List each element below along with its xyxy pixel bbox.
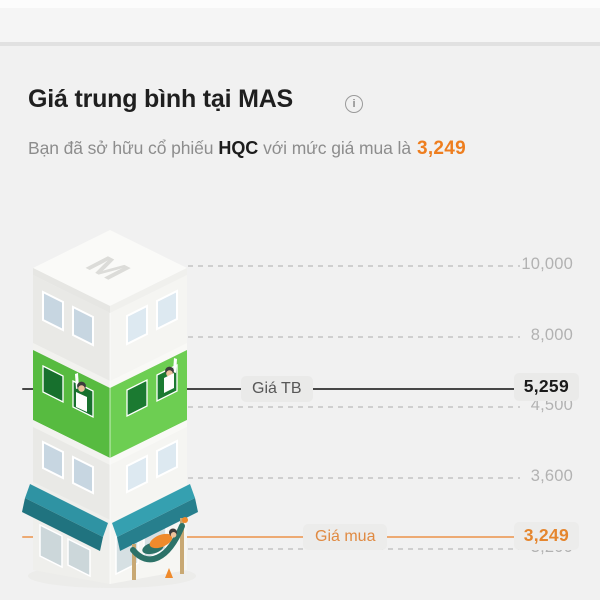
dashed-line xyxy=(188,265,520,267)
building-illustration: M xyxy=(20,226,200,590)
tick-label: 3,600 xyxy=(531,468,573,485)
info-icon[interactable]: i xyxy=(345,95,363,113)
lantern xyxy=(182,517,188,523)
average-price-value: 5,259 xyxy=(514,373,579,401)
subtitle-prefix: Bạn đã sở hữu cổ phiếu xyxy=(28,138,213,158)
purchase-price-value: 3,249 xyxy=(514,522,579,550)
mas-average-price-card: Giá trung bình tại MAS i Bạn đã sở hữu c… xyxy=(0,0,600,600)
dashed-line xyxy=(188,406,520,408)
purchase-price-inline: 3,249 xyxy=(417,138,466,159)
top-app-bar xyxy=(0,0,600,46)
tick-label: 10,000 xyxy=(521,256,573,273)
dashed-line xyxy=(188,477,520,479)
purchase-price-label: Giá mua xyxy=(303,524,387,550)
ticker-symbol: HQC xyxy=(218,138,258,158)
dashed-line xyxy=(188,336,520,338)
person-face xyxy=(171,532,177,538)
tick-label: 8,000 xyxy=(531,327,573,344)
subtitle: Bạn đã sở hữu cổ phiếuHQCvới mức giá mua… xyxy=(28,138,466,160)
subtitle-suffix: với mức giá mua là xyxy=(263,138,411,158)
page-title: Giá trung bình tại MAS xyxy=(28,86,293,114)
average-price-label: Giá TB xyxy=(241,376,313,402)
